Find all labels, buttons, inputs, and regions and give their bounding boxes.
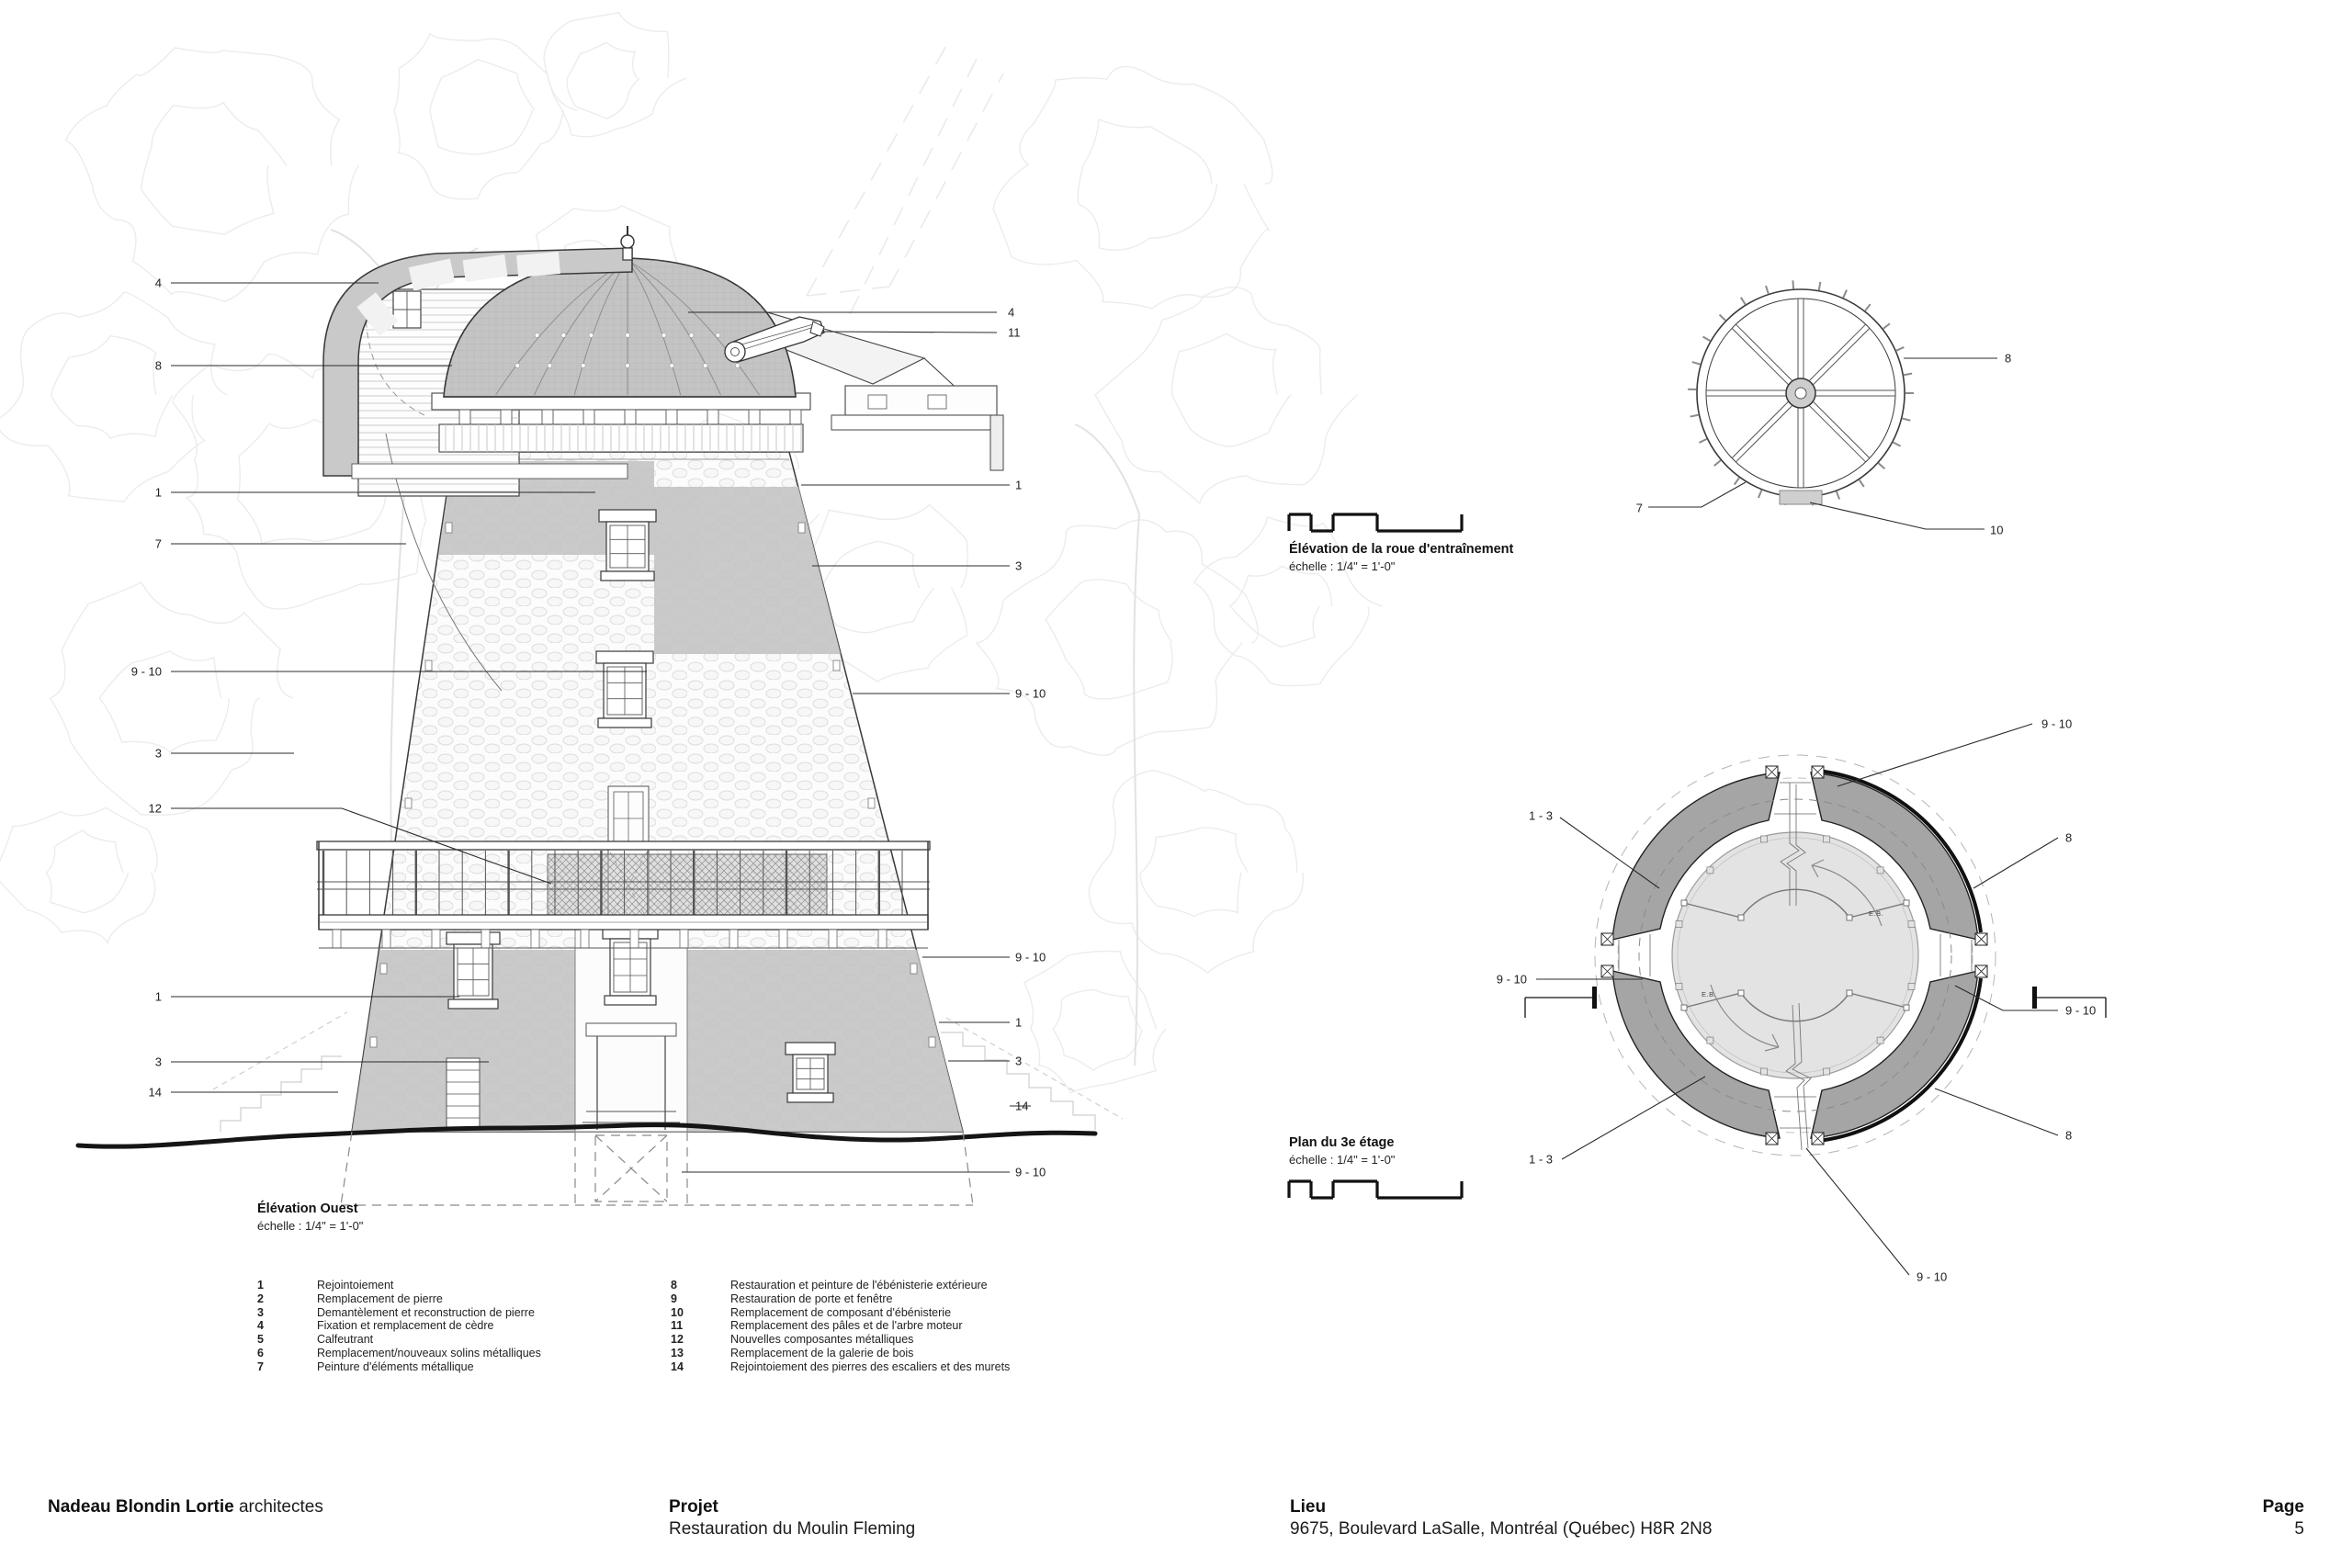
legend-number: 10 — [671, 1306, 730, 1320]
footer-location: Lieu 9675, Boulevard LaSalle, Montréal (… — [1290, 1497, 1712, 1540]
legend-row: 8 Restauration et peinture de l'ébéniste… — [671, 1279, 1010, 1292]
elevation-title-block: Élévation Ouest échelle : 1/4" = 1'-0" — [257, 1201, 363, 1233]
legend-row: 11 Remplacement des pâles et de l'arbre … — [671, 1319, 1010, 1333]
callout-label: 8 — [2065, 831, 2072, 845]
page-number: 5 — [2263, 1519, 2304, 1540]
callout-label: 14 — [1015, 1100, 1028, 1113]
plan-floor-label: E.B. — [1702, 990, 1716, 998]
legend-number: 8 — [671, 1279, 730, 1292]
callout-label: 9 - 10 — [1015, 1166, 1046, 1179]
callout-label: 1 — [155, 990, 162, 1004]
legend-row: 10 Remplacement de composant d'ébénister… — [671, 1306, 1010, 1320]
project-value: Restauration du Moulin Fleming — [669, 1519, 915, 1540]
legend-label: Restauration de porte et fenêtre — [730, 1292, 893, 1306]
legend-row: 14 Rejointoiement des pierres des escali… — [671, 1360, 1010, 1374]
legend-row: 3 Demantèlement et reconstruction de pie… — [257, 1306, 541, 1320]
legend-label: Nouvelles composantes métalliques — [730, 1333, 913, 1347]
callout-label: 3 — [155, 747, 162, 761]
callout-label: 8 — [2065, 1129, 2072, 1143]
callout-label: 9 - 10 — [1917, 1270, 1947, 1284]
callout-label: 1 - 3 — [1529, 809, 1553, 823]
footer-page: Page 5 — [2263, 1497, 2304, 1540]
legend-row: 1 Rejointoiement — [257, 1279, 541, 1292]
plan-scale: échelle : 1/4" = 1'-0" — [1289, 1153, 1395, 1167]
project-label: Projet — [669, 1497, 915, 1517]
callout-label: 9 - 10 — [1015, 687, 1046, 701]
wheel-title: Élévation de la roue d'entraînement — [1289, 542, 1513, 557]
callout-label: 4 — [155, 276, 162, 290]
legend-number: 3 — [257, 1306, 317, 1320]
callout-label: 10 — [1990, 524, 2003, 537]
wheel-scale-bar — [1289, 514, 1462, 531]
legend-label: Remplacement de pierre — [317, 1292, 443, 1306]
windmill-west-elevation — [78, 226, 1123, 1205]
plan-floor-label: E.B. — [1869, 909, 1883, 918]
callout-label: 1 - 3 — [1529, 1153, 1553, 1167]
callout-label: 12 — [149, 802, 162, 816]
callout-label: 9 - 10 — [2065, 1004, 2096, 1018]
finial — [621, 226, 634, 260]
callout-label: 11 — [1008, 326, 1021, 340]
wheel-title-block: Élévation de la roue d'entraînement éche… — [1289, 542, 1513, 573]
legend-number: 4 — [257, 1319, 317, 1333]
legend-label: Remplacement/nouveaux solins métalliques — [317, 1347, 541, 1360]
legend-number: 6 — [257, 1347, 317, 1360]
callout-label: 4 — [1008, 306, 1014, 320]
callout-label: 8 — [155, 359, 162, 373]
callout-label: 1 — [1015, 479, 1022, 492]
drive-wheel-elevation — [1688, 280, 1914, 505]
legend-number: 11 — [671, 1319, 730, 1333]
callout-label: 8 — [2005, 352, 2011, 366]
firm-suffix: architectes — [234, 1497, 323, 1517]
legend-number: 1 — [257, 1279, 317, 1292]
callout-label: 9 - 10 — [1015, 951, 1046, 964]
legend-label: Remplacement des pâles et de l'arbre mot… — [730, 1319, 963, 1333]
footer-firm: Nadeau Blondin Lortie architectes — [48, 1497, 323, 1517]
callout-label: 9 - 10 — [2041, 717, 2072, 731]
legend-row: 2 Remplacement de pierre — [257, 1292, 541, 1306]
legend-label: Peinture d'éléments métallique — [317, 1360, 474, 1374]
legend-number: 7 — [257, 1360, 317, 1374]
legend-number: 2 — [257, 1292, 317, 1306]
metal-mesh-panel — [548, 854, 827, 920]
plan-title: Plan du 3e étage — [1289, 1135, 1395, 1150]
legend-row: 12 Nouvelles composantes métalliques — [671, 1333, 1010, 1347]
legend-label: Fixation et remplacement de cèdre — [317, 1319, 493, 1333]
wheel-base-block — [1780, 491, 1822, 504]
callout-label: 1 — [155, 486, 162, 500]
callout-label: 3 — [1015, 559, 1022, 573]
firm-name: Nadeau Blondin Lortie — [48, 1497, 234, 1517]
callout-label: 3 — [1015, 1055, 1022, 1068]
legend-number: 13 — [671, 1347, 730, 1360]
legend-right: 8 Restauration et peinture de l'ébéniste… — [671, 1279, 1010, 1374]
legend-number: 9 — [671, 1292, 730, 1306]
callout-label: 9 - 10 — [131, 665, 162, 679]
location-label: Lieu — [1290, 1497, 1712, 1517]
legend-row: 7 Peinture d'éléments métallique — [257, 1360, 541, 1374]
architectural-drawing-sheet: 48179 - 103121314411139 - 109 - 1013149 … — [0, 0, 2352, 1568]
callout-label: 7 — [155, 537, 162, 551]
legend-label: Remplacement de composant d'ébénisterie — [730, 1306, 951, 1320]
ghost-blade-lines — [807, 42, 1003, 314]
elevation-scale: échelle : 1/4" = 1'-0" — [257, 1219, 363, 1233]
legend-row: 13 Remplacement de la galerie de bois — [671, 1347, 1010, 1360]
legend-row: 6 Remplacement/nouveaux solins métalliqu… — [257, 1347, 541, 1360]
legend-row: 9 Restauration de porte et fenêtre — [671, 1292, 1010, 1306]
legend-label: Remplacement de la galerie de bois — [730, 1347, 913, 1360]
legend-label: Rejointoiement des pierres des escaliers… — [730, 1360, 1010, 1374]
plan-title-block: Plan du 3e étage échelle : 1/4" = 1'-0" — [1289, 1135, 1395, 1167]
legend-number: 14 — [671, 1360, 730, 1374]
wheel-scale: échelle : 1/4" = 1'-0" — [1289, 559, 1513, 573]
left-stair-block — [447, 1058, 480, 1130]
legend-label: Demantèlement et reconstruction de pierr… — [317, 1306, 535, 1320]
foundation-dashed — [341, 1132, 973, 1205]
footer-project: Projet Restauration du Moulin Fleming — [669, 1497, 915, 1540]
third-floor-plan — [1525, 755, 2106, 1156]
legend-label: Restauration et peinture de l'ébénisteri… — [730, 1279, 988, 1292]
elevation-title: Élévation Ouest — [257, 1201, 363, 1216]
location-value: 9675, Boulevard LaSalle, Montréal (Québe… — [1290, 1519, 1712, 1540]
legend-number: 12 — [671, 1333, 730, 1347]
annex-window — [393, 291, 421, 328]
callout-label: 1 — [1015, 1016, 1022, 1030]
legend-row: 4 Fixation et remplacement de cèdre — [257, 1319, 541, 1333]
callout-label: 3 — [155, 1055, 162, 1069]
legend-number: 5 — [257, 1333, 317, 1347]
page-label: Page — [2263, 1497, 2304, 1517]
legend-label: Calfeutrant — [317, 1333, 373, 1347]
callout-label: 14 — [149, 1086, 162, 1100]
legend-label: Rejointoiement — [317, 1279, 393, 1292]
legend-row: 5 Calfeutrant — [257, 1333, 541, 1347]
callout-label: 9 - 10 — [1497, 973, 1527, 987]
plan-scale-bar — [1289, 1181, 1462, 1198]
callout-label: 7 — [1636, 502, 1643, 515]
legend-left: 1 Rejointoiement 2 Remplacement de pierr… — [257, 1279, 541, 1374]
